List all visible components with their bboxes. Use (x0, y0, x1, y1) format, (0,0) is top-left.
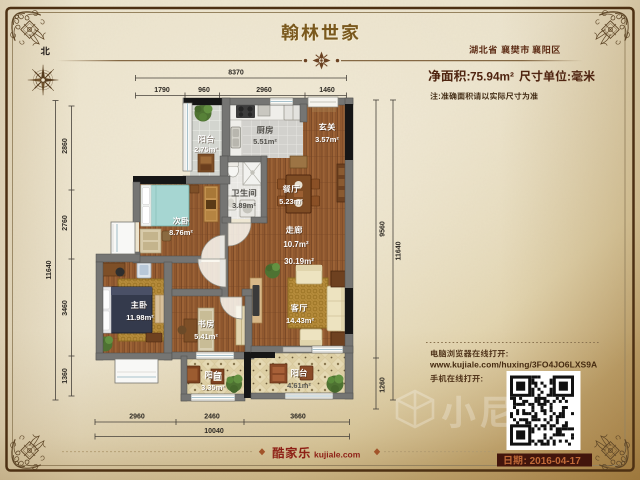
svg-text:5.23m²: 5.23m² (279, 197, 303, 206)
svg-text:8.76m²: 8.76m² (169, 228, 193, 237)
svg-text:: 2016-04-17: : 2016-04-17 (524, 456, 582, 467)
svg-text:1260: 1260 (380, 377, 387, 393)
svg-text:2860: 2860 (62, 138, 69, 154)
svg-text:10.7m²: 10.7m² (283, 240, 309, 249)
svg-text:5.51m²: 5.51m² (253, 137, 277, 146)
svg-text:960: 960 (198, 87, 210, 94)
svg-text:3.35m²: 3.35m² (201, 383, 225, 392)
svg-text:8370: 8370 (228, 70, 244, 77)
svg-text:14.43m²: 14.43m² (286, 316, 314, 325)
svg-text::: : (506, 350, 509, 359)
svg-text::: : (567, 70, 571, 84)
svg-text:kujiale.com: kujiale.com (314, 450, 361, 460)
svg-text:3660: 3660 (290, 414, 306, 421)
svg-text:1790: 1790 (154, 87, 170, 94)
svg-text:1460: 1460 (319, 87, 335, 94)
svg-text:11.98m²: 11.98m² (126, 313, 154, 322)
svg-text:3.89m²: 3.89m² (232, 201, 256, 210)
svg-text:1360: 1360 (62, 368, 69, 384)
svg-text:2.75m²: 2.75m² (194, 145, 218, 154)
svg-text::: : (438, 92, 441, 101)
svg-text:2960: 2960 (256, 87, 272, 94)
svg-text:11640: 11640 (396, 241, 403, 260)
svg-text:9560: 9560 (380, 221, 387, 237)
svg-text:2460: 2460 (204, 414, 220, 421)
svg-text:5.41m²: 5.41m² (194, 332, 218, 341)
svg-text:3.57m²: 3.57m² (315, 135, 339, 144)
svg-text:11640: 11640 (46, 260, 53, 279)
svg-text:2760: 2760 (62, 215, 69, 231)
svg-text:30.19m²: 30.19m² (284, 257, 314, 266)
svg-text:4.61m²: 4.61m² (287, 381, 311, 390)
svg-text:2960: 2960 (129, 414, 145, 421)
svg-text:3460: 3460 (62, 300, 69, 316)
svg-text:75.94m²: 75.94m² (470, 70, 514, 84)
svg-text:www.kujiale.com/huxing/3FO4JO6: www.kujiale.com/huxing/3FO4JO6LXS9A (429, 360, 597, 370)
svg-text::: : (480, 375, 483, 384)
svg-text:10040: 10040 (204, 428, 224, 435)
